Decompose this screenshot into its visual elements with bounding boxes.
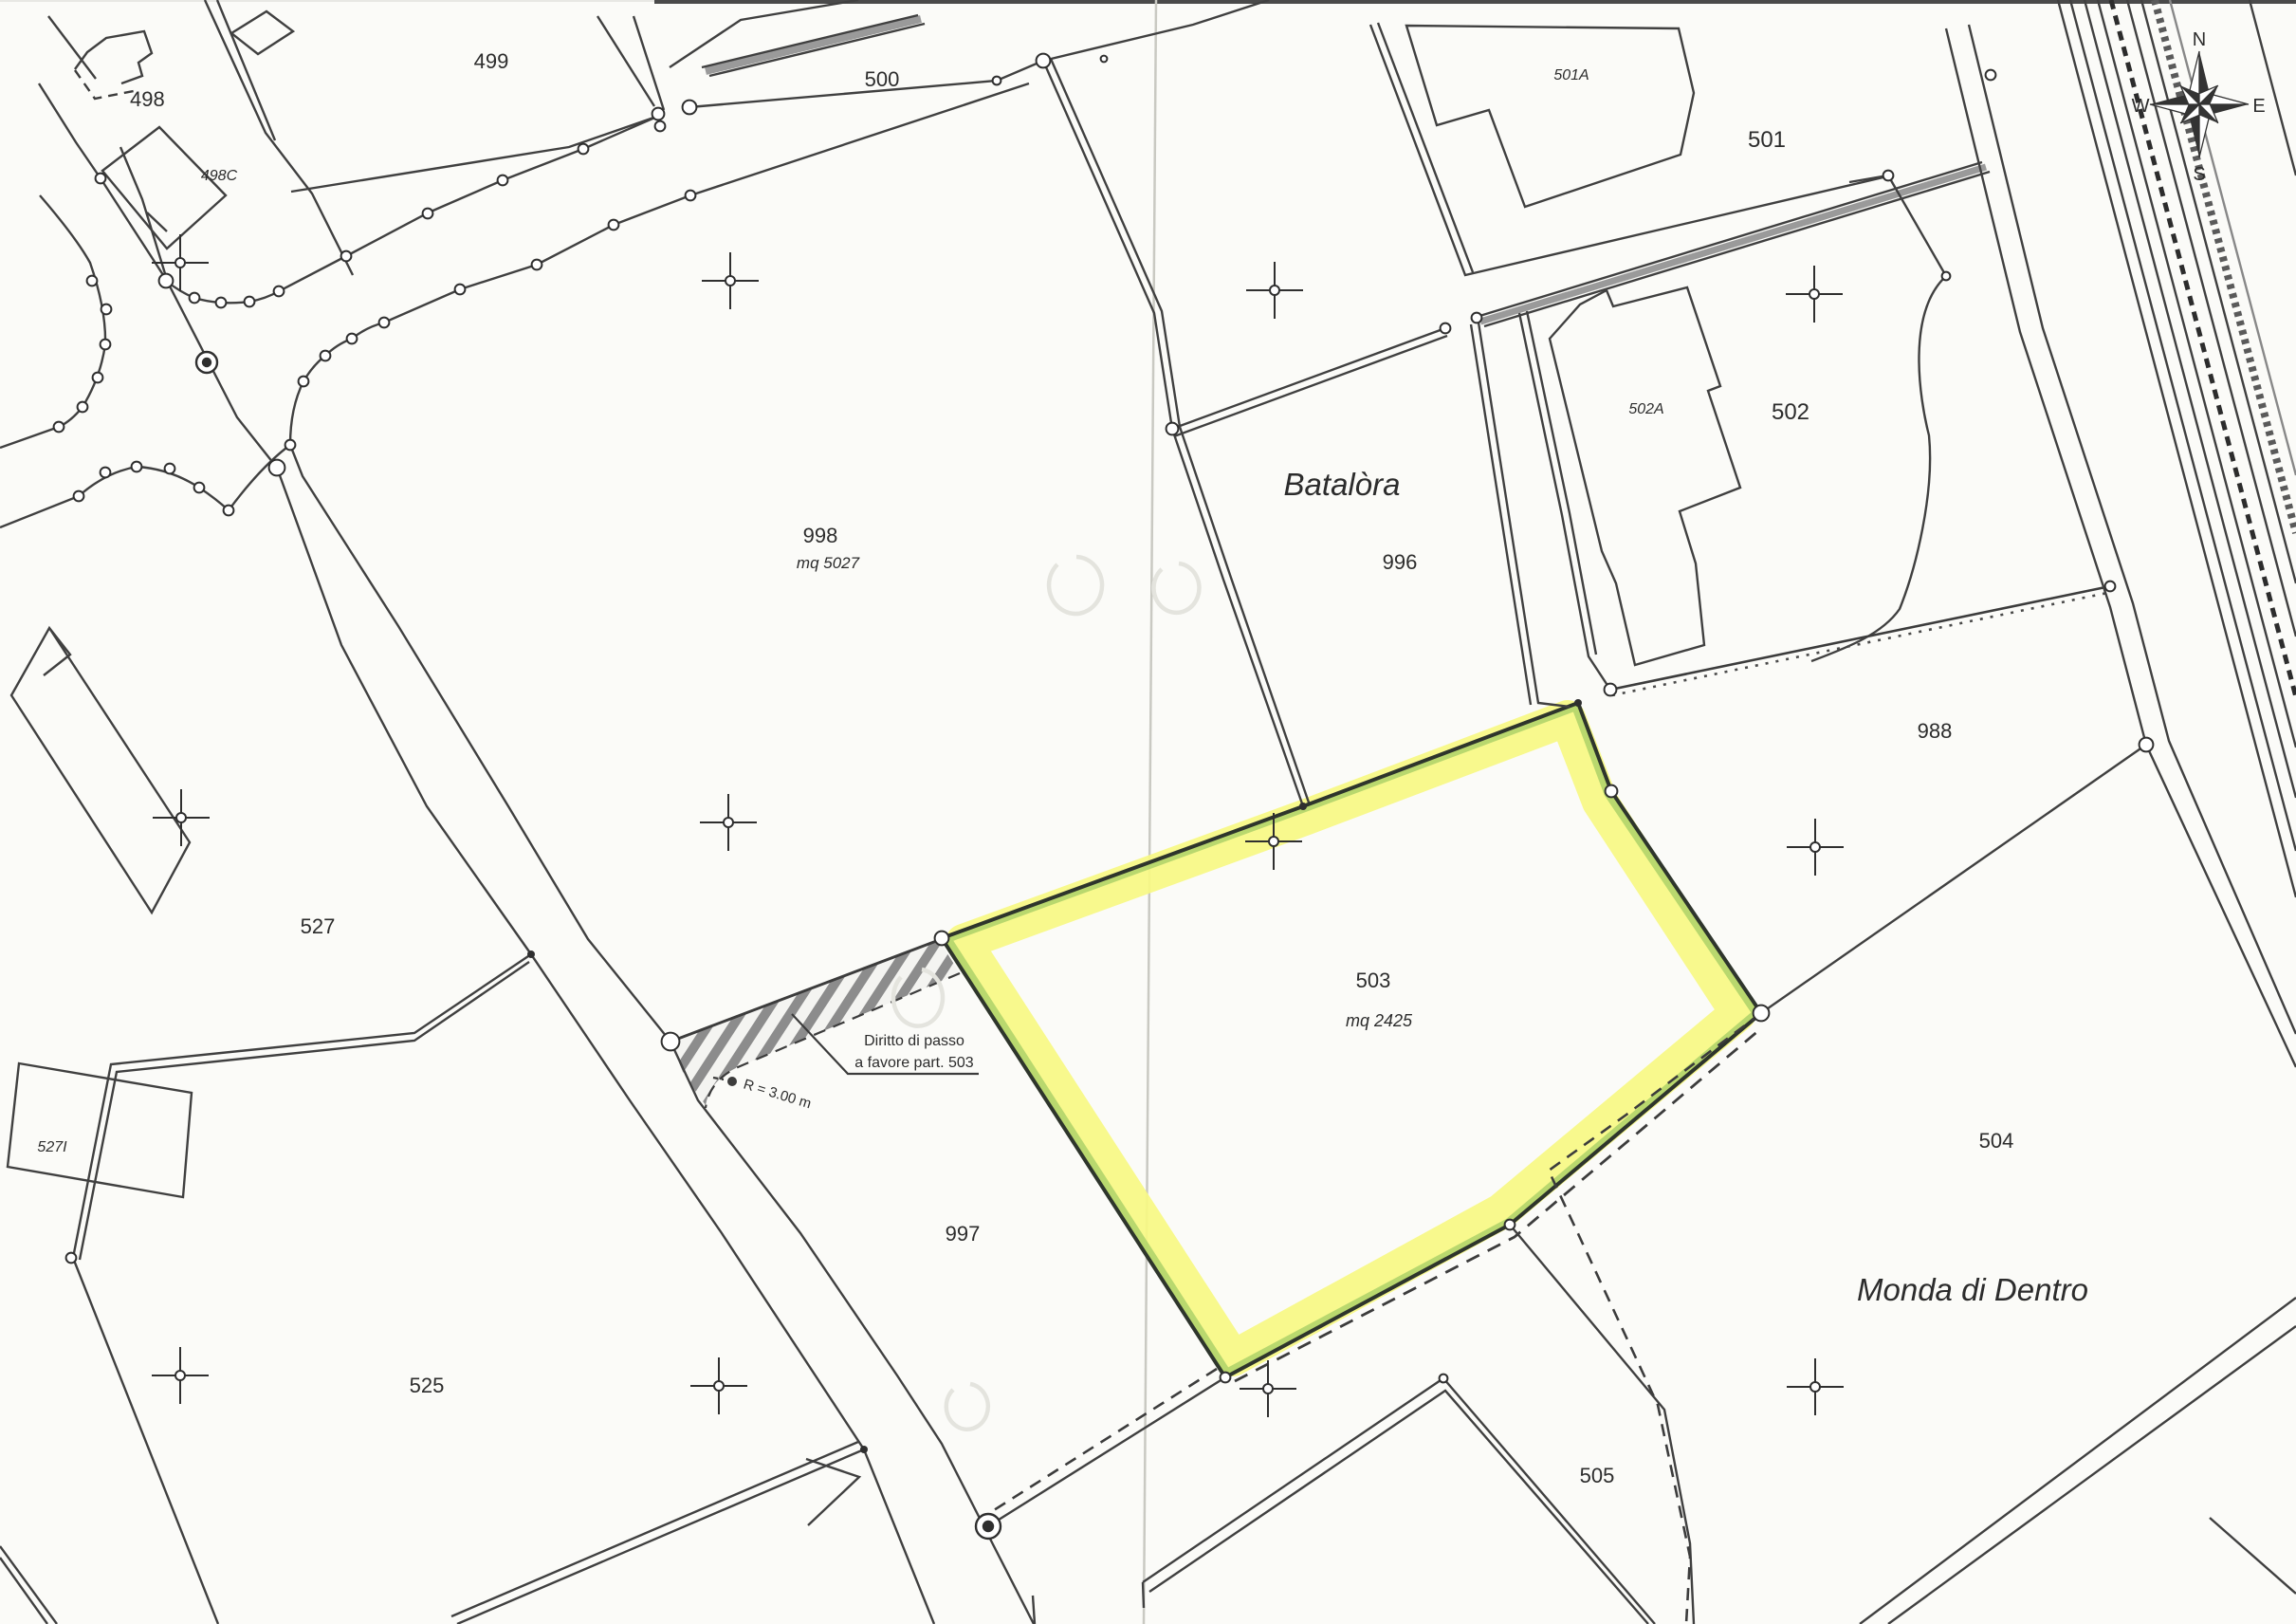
svg-text:a favore part. 503: a favore part. 503 (854, 1055, 974, 1071)
svg-text:527: 527 (301, 914, 336, 938)
svg-text:W: W (2132, 96, 2150, 117)
svg-text:500: 500 (865, 67, 900, 91)
svg-text:525: 525 (410, 1374, 445, 1397)
svg-text:498: 498 (130, 87, 165, 111)
svg-text:502: 502 (1772, 399, 1809, 425)
svg-text:Monda di Dentro: Monda di Dentro (1857, 1272, 2088, 1307)
svg-text:997: 997 (946, 1222, 981, 1246)
svg-text:503: 503 (1356, 969, 1391, 992)
svg-text:Batalòra: Batalòra (1284, 467, 1401, 502)
svg-text:502A: 502A (1628, 401, 1663, 417)
svg-text:499: 499 (474, 49, 509, 73)
svg-text:996: 996 (1383, 550, 1418, 574)
svg-text:998: 998 (803, 524, 838, 547)
svg-text:E: E (2252, 96, 2265, 117)
svg-text:S: S (2193, 164, 2205, 185)
svg-text:Diritto di passo: Diritto di passo (864, 1033, 964, 1049)
svg-text:527I: 527I (37, 1139, 67, 1155)
svg-text:mq 5027: mq 5027 (797, 554, 860, 572)
svg-text:501: 501 (1748, 127, 1786, 153)
svg-text:mq 2425: mq 2425 (1346, 1011, 1413, 1030)
svg-text:N: N (2193, 29, 2206, 50)
svg-text:504: 504 (1979, 1129, 2014, 1153)
svg-text:498C: 498C (201, 168, 238, 184)
svg-text:988: 988 (1918, 719, 1953, 743)
svg-text:505: 505 (1580, 1464, 1615, 1487)
svg-text:501A: 501A (1553, 67, 1589, 83)
